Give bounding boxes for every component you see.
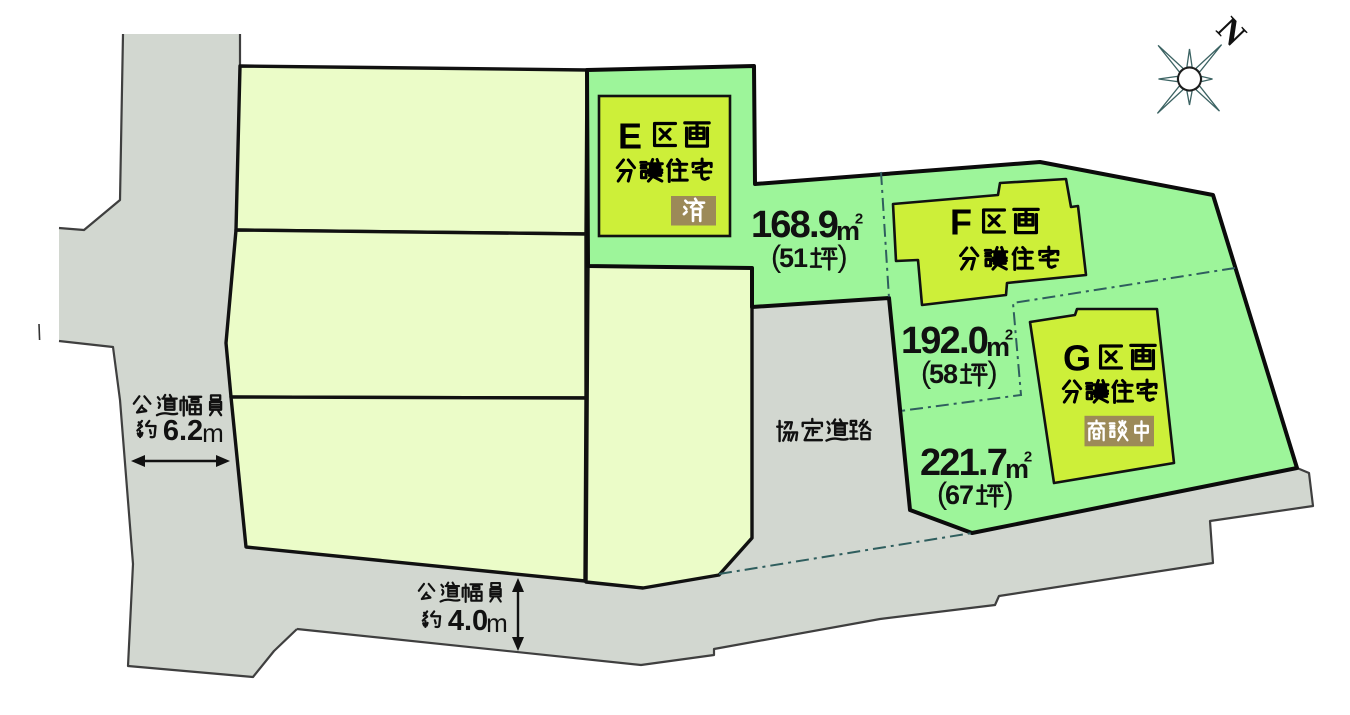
svg-text:N: N <box>1209 10 1253 54</box>
svg-text:168.9: 168.9 <box>751 204 838 246</box>
svg-text:67: 67 <box>945 480 973 510</box>
svg-text:2: 2 <box>1005 327 1013 344</box>
svg-text:F: F <box>950 202 972 243</box>
svg-text:51: 51 <box>779 243 808 273</box>
svg-text:192.0: 192.0 <box>901 320 988 362</box>
svg-text:4.0: 4.0 <box>448 605 488 637</box>
svg-text:): ) <box>987 355 997 390</box>
svg-text:m: m <box>202 418 224 448</box>
svg-text:E: E <box>618 116 642 157</box>
svg-text:2: 2 <box>1024 449 1032 466</box>
svg-text:): ) <box>1003 476 1013 511</box>
svg-text:): ) <box>837 239 847 274</box>
svg-text:2: 2 <box>855 211 863 228</box>
svg-text:6.2: 6.2 <box>163 415 203 447</box>
svg-text:m: m <box>486 608 508 638</box>
svg-text:58: 58 <box>929 359 958 389</box>
svg-text:G: G <box>1063 338 1091 379</box>
svg-text:221.7: 221.7 <box>920 442 1007 484</box>
